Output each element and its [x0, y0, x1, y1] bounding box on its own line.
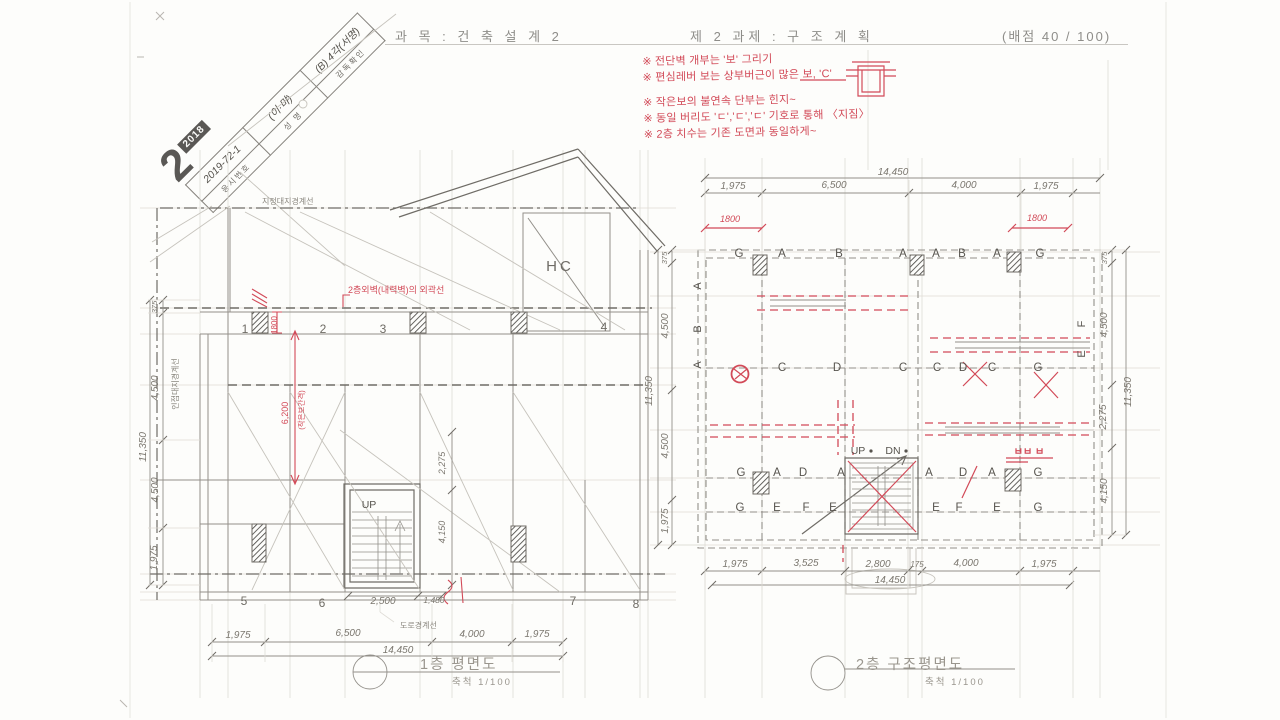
dim-total-text: 14,450 [383, 645, 414, 656]
dim-text: 1,975 [524, 629, 549, 640]
plan1-roof-and-stair-outline [344, 149, 665, 588]
dim-text: 6,500 [335, 628, 360, 639]
plan2-title: 2층 구조평면도 [856, 656, 964, 673]
beam-letter: B [958, 248, 966, 260]
plan2-extension-lines [672, 180, 1126, 590]
red-dim-text: 6,200 [280, 402, 290, 425]
red-dim-text: 1800 [1027, 213, 1047, 223]
beam-letter: F [1076, 320, 1088, 327]
dim-total-text: 14,450 [875, 575, 906, 586]
beam-letter: F [955, 502, 962, 514]
beam-letter: D [833, 362, 841, 374]
red-beam-section-sketch [800, 62, 896, 96]
beam-letter: A [899, 248, 907, 260]
beam-letter: C [933, 362, 941, 374]
beam-letter: B [692, 325, 704, 332]
dim-total-text: 14,450 [878, 167, 909, 178]
beam-letter: A [993, 248, 1001, 260]
dim-text: 4,150 [1099, 478, 1110, 503]
beam-letter: C [899, 362, 907, 374]
dim-text: 375 [1100, 251, 1109, 264]
dim-text: 1,975 [722, 559, 747, 570]
dim-text: 1,975 [720, 181, 745, 192]
plan2-scale: 축척 1/100 [925, 677, 985, 688]
beam-letter: D [959, 362, 967, 374]
dim-text: 3,525 [793, 558, 818, 569]
beam-letter: A [778, 248, 786, 260]
dim-text: 4,500 [660, 433, 671, 458]
plan2-dimension-lines [658, 178, 1126, 690]
plan1-2f-wall-outline-dashed [160, 308, 652, 385]
beam-letter: A [692, 282, 704, 290]
exam-sheet: 과 목 : 건 축 설 계 2 제 2 과제 : 구 조 계 획 (배점 40 … [0, 0, 1280, 720]
dim-text: 4,500 [1099, 312, 1110, 337]
dim-text: 1,975 [225, 630, 250, 641]
beam-letter: A [692, 361, 704, 369]
beam-letter: D [799, 467, 807, 479]
dim-text: 175 [910, 560, 924, 569]
dim-text: 1,480 [423, 595, 445, 605]
drawing-svg: 1 2 3 4 5 6 7 8 1,975 6,500 4,000 1,975 … [0, 0, 1280, 720]
dim-total-text: 11,350 [138, 432, 149, 462]
dim-text: 1,975 [1031, 559, 1056, 570]
road-boundary-label: 도로경계선 [400, 620, 437, 630]
plan1-walls [157, 208, 648, 600]
dim-text: 2,275 [437, 451, 447, 476]
site-boundary-label: 지정대지경계선 [262, 196, 314, 206]
beam-letter: A [925, 467, 933, 479]
grid-number: 8 [633, 597, 640, 611]
beam-letter: G [1034, 362, 1043, 374]
dim-text: 4,000 [951, 180, 976, 191]
stair-dn-dot [904, 449, 907, 452]
dim-text: 4,500 [150, 375, 161, 400]
grid-number: 2 [320, 322, 327, 336]
construction-lines-plan1 [140, 150, 676, 698]
stamp-leader-line [228, 14, 396, 266]
dim-text: 375 [150, 300, 159, 313]
beam-letter: D [959, 467, 967, 479]
dim-text: 4,000 [459, 629, 484, 640]
plan1-extension-lines [148, 300, 563, 662]
beam-letter: C [778, 362, 786, 374]
beam-letter: G [1036, 248, 1045, 260]
red-dim-text: 1800 [720, 214, 740, 224]
dim-text: 4,000 [953, 558, 978, 569]
beam-letter: F [802, 502, 809, 514]
beam-letter: B [835, 248, 843, 260]
dim-text: 4,500 [660, 313, 671, 338]
dim-text: 2,800 [864, 559, 890, 570]
grid-number: 3 [380, 322, 387, 336]
dim-text: 6,500 [821, 180, 846, 191]
plan1-dimension-ticks [146, 296, 567, 660]
dim-text: 4,150 [437, 521, 447, 544]
beam-letter: E [932, 502, 940, 514]
red-check-note: ㅂㅂ ㅂ [1014, 447, 1044, 458]
plan1-site-boundary-lines [150, 208, 665, 600]
grid-number: 6 [319, 596, 326, 610]
beam-letter: E [829, 502, 837, 514]
stair-up-label: UP [362, 499, 377, 511]
adjacent-boundary-label: 인접대지경계선 [170, 358, 180, 410]
plan1-scale: 축척 1/100 [452, 677, 512, 688]
beam-letter: G [735, 248, 744, 260]
stair-up-label: UP [851, 445, 866, 457]
beam-letter: G [736, 502, 745, 514]
stair-up-dot [869, 449, 872, 452]
beam-letter: A [988, 467, 996, 479]
plan1-stair-treads [352, 512, 412, 580]
stair-dn-label: DN [885, 445, 900, 457]
plan1-title: 1층 평면도 [420, 656, 497, 673]
grid-number: 4 [601, 320, 608, 334]
red-dim-text: 1800 [270, 316, 279, 334]
dim-text: 375 [660, 251, 669, 264]
red-wall-outline-label: 2층외벽(내력벽)의 외곽선 [348, 284, 444, 295]
dim-text: 2,500 [369, 596, 395, 607]
dim-text: 2,275 [1098, 404, 1109, 430]
grid-number: 1 [242, 322, 249, 336]
dim-text: 1,975 [149, 545, 160, 570]
plan2-dimension-ticks [654, 174, 1130, 589]
dim-text: 4,500 [150, 477, 161, 502]
beam-letter: E [993, 502, 1001, 514]
beam-letter: G [737, 467, 746, 479]
beam-letter: A [773, 467, 781, 479]
beam-letter: A [837, 467, 845, 479]
beam-letter: G [1034, 502, 1043, 514]
beam-letter: E [1076, 350, 1088, 357]
beam-letter: A [932, 248, 940, 260]
construction-lines-plan2 [650, 50, 1160, 698]
plan2-red-dashed-beams [710, 296, 1090, 562]
grid-number: 5 [241, 594, 248, 608]
beam-letter: E [773, 502, 781, 514]
dim-text: 1,975 [1033, 181, 1058, 192]
plan2-title-bubble [811, 656, 845, 690]
grid-number: 7 [570, 594, 577, 608]
dim-total-text: 11,350 [644, 376, 655, 406]
beam-letter: C [988, 362, 996, 374]
plan1-red-annotations [252, 289, 463, 604]
dim-text: 1,975 [660, 508, 671, 533]
red-dim-note: (작은보간격) [296, 390, 306, 430]
dim-total-text: 11,350 [1123, 377, 1134, 407]
hc-room-label: HC [546, 258, 574, 275]
beam-letter: G [1034, 467, 1043, 479]
